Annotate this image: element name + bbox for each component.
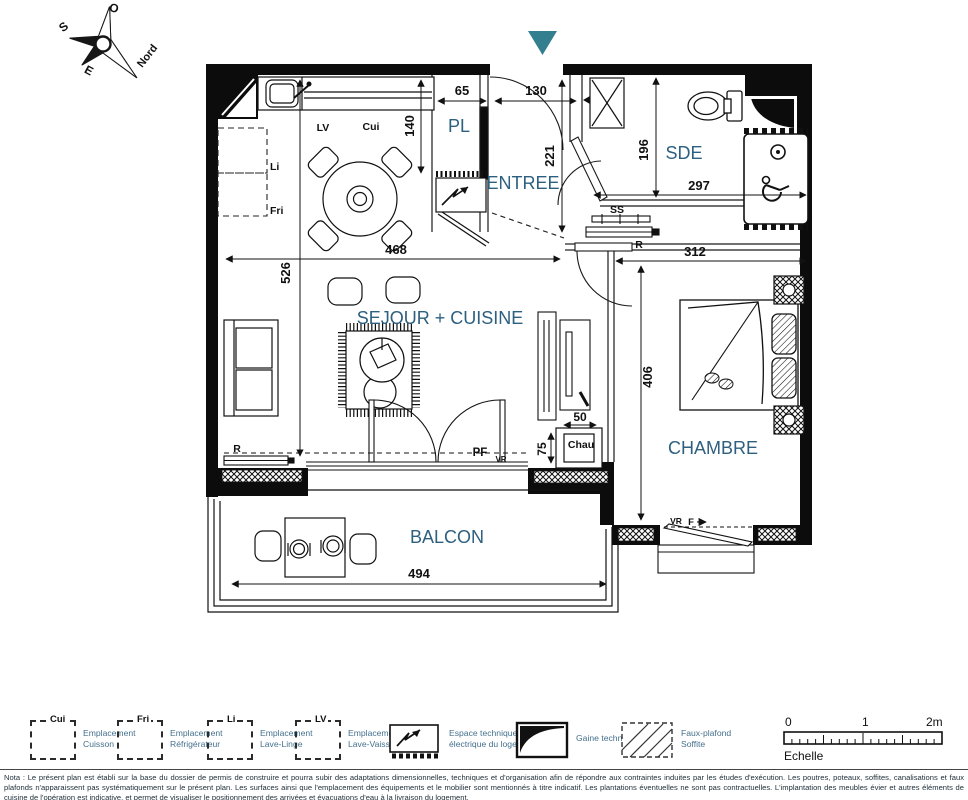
dim-221: 221 [542, 145, 557, 167]
legend: Cui Emplacement Cuisson Fri Emplacement … [0, 710, 968, 770]
bed [680, 300, 798, 410]
kitchen-counter [258, 77, 434, 110]
dashed-box-icon: Cui [30, 720, 76, 760]
label-vr-chambre: VR [670, 516, 682, 526]
gaine-technique-icon [515, 720, 569, 762]
scale-bar: 0 1 2m Echelle [782, 714, 952, 773]
legend-item-espace-technique: Espace technique électrique du logement [388, 720, 536, 762]
room-sde: SDE [665, 143, 702, 163]
gaine-technique-wedge [750, 98, 795, 129]
dim-196: 196 [636, 139, 651, 161]
label-r-sde: R [635, 239, 643, 251]
sofa [224, 320, 278, 416]
dim-297: 297 [688, 178, 710, 193]
sde-toilet [688, 91, 742, 121]
scale-0: 0 [785, 715, 792, 729]
legend-label: Faux-plafond [681, 728, 731, 738]
label-r-sejour: R [233, 443, 241, 455]
sde-shower [583, 78, 624, 128]
label-fri: Fri [270, 205, 284, 217]
scale-label: Echelle [784, 749, 824, 763]
label-cui: Cui [363, 121, 380, 133]
scale-bar-drawing: 0 1 2m Echelle [782, 714, 952, 768]
dim-65: 65 [455, 83, 469, 98]
legend-item-faux-plafond: Faux-plafond Soffite [620, 720, 731, 762]
faux-plafond-icon [620, 720, 674, 762]
dim-494: 494 [408, 566, 430, 581]
label-vr-sejour: VR [495, 455, 506, 464]
label-ss: SS [610, 204, 624, 216]
label-chau: Chau [568, 439, 594, 451]
pl-closet [436, 174, 489, 246]
dining-table [306, 145, 413, 252]
floor-plan-drawing: O S E Nord [0, 0, 968, 710]
compass-north-label: Nord [135, 42, 160, 70]
sde-accessible-shower [744, 131, 808, 227]
legend-label: Espace technique [449, 728, 517, 738]
dim-140: 140 [402, 115, 417, 137]
legend-code: LV [313, 715, 328, 725]
dim-406: 406 [640, 366, 655, 388]
compass-south-label: S [56, 19, 71, 35]
compass-east-label: E [82, 62, 96, 78]
dim-468: 468 [385, 242, 407, 257]
label-pf: PF [473, 447, 488, 459]
dim-312: 312 [684, 244, 706, 259]
dim-130: 130 [525, 83, 547, 98]
room-sejour: SEJOUR + CUISINE [357, 308, 524, 328]
room-entree: ENTREE [486, 173, 559, 193]
poufs [328, 277, 420, 305]
dashed-box-icon: Li [207, 720, 253, 760]
legend-code: Cui [48, 715, 67, 725]
nota-text: Nota : Le présent plan est établi sur la… [0, 769, 968, 800]
label-f: F [688, 517, 694, 528]
espace-technique-icon [388, 720, 442, 762]
scale-1: 1 [862, 715, 869, 729]
appliance-zones [218, 128, 267, 216]
legend-code: Li [225, 715, 237, 725]
chambre-window [658, 522, 754, 573]
console-desk [538, 312, 590, 420]
dashed-box-icon: LV [295, 720, 341, 760]
dim-50: 50 [573, 410, 587, 424]
label-li: Li [270, 161, 279, 173]
entrance-marker-icon [528, 31, 557, 55]
compass-rose: O S E Nord [56, 0, 160, 78]
kitchen-corner-pillar [218, 75, 258, 119]
sde-radiator [586, 227, 659, 237]
sejour-radiator [224, 456, 294, 465]
label-lv: LV [317, 122, 330, 134]
legend-code: Fri [135, 715, 151, 725]
room-pl: PL [448, 116, 470, 136]
compass-west-label: O [108, 0, 120, 16]
room-balcon: BALCON [410, 527, 484, 547]
balcony-table-set [255, 518, 376, 577]
dim-75: 75 [535, 442, 549, 456]
floor-plan-page: O S E Nord [0, 0, 968, 800]
dim-526: 526 [278, 262, 293, 284]
dashed-box-icon: Fri [117, 720, 163, 760]
room-chambre: CHAMBRE [668, 438, 758, 458]
scale-2m: 2m [926, 715, 943, 729]
